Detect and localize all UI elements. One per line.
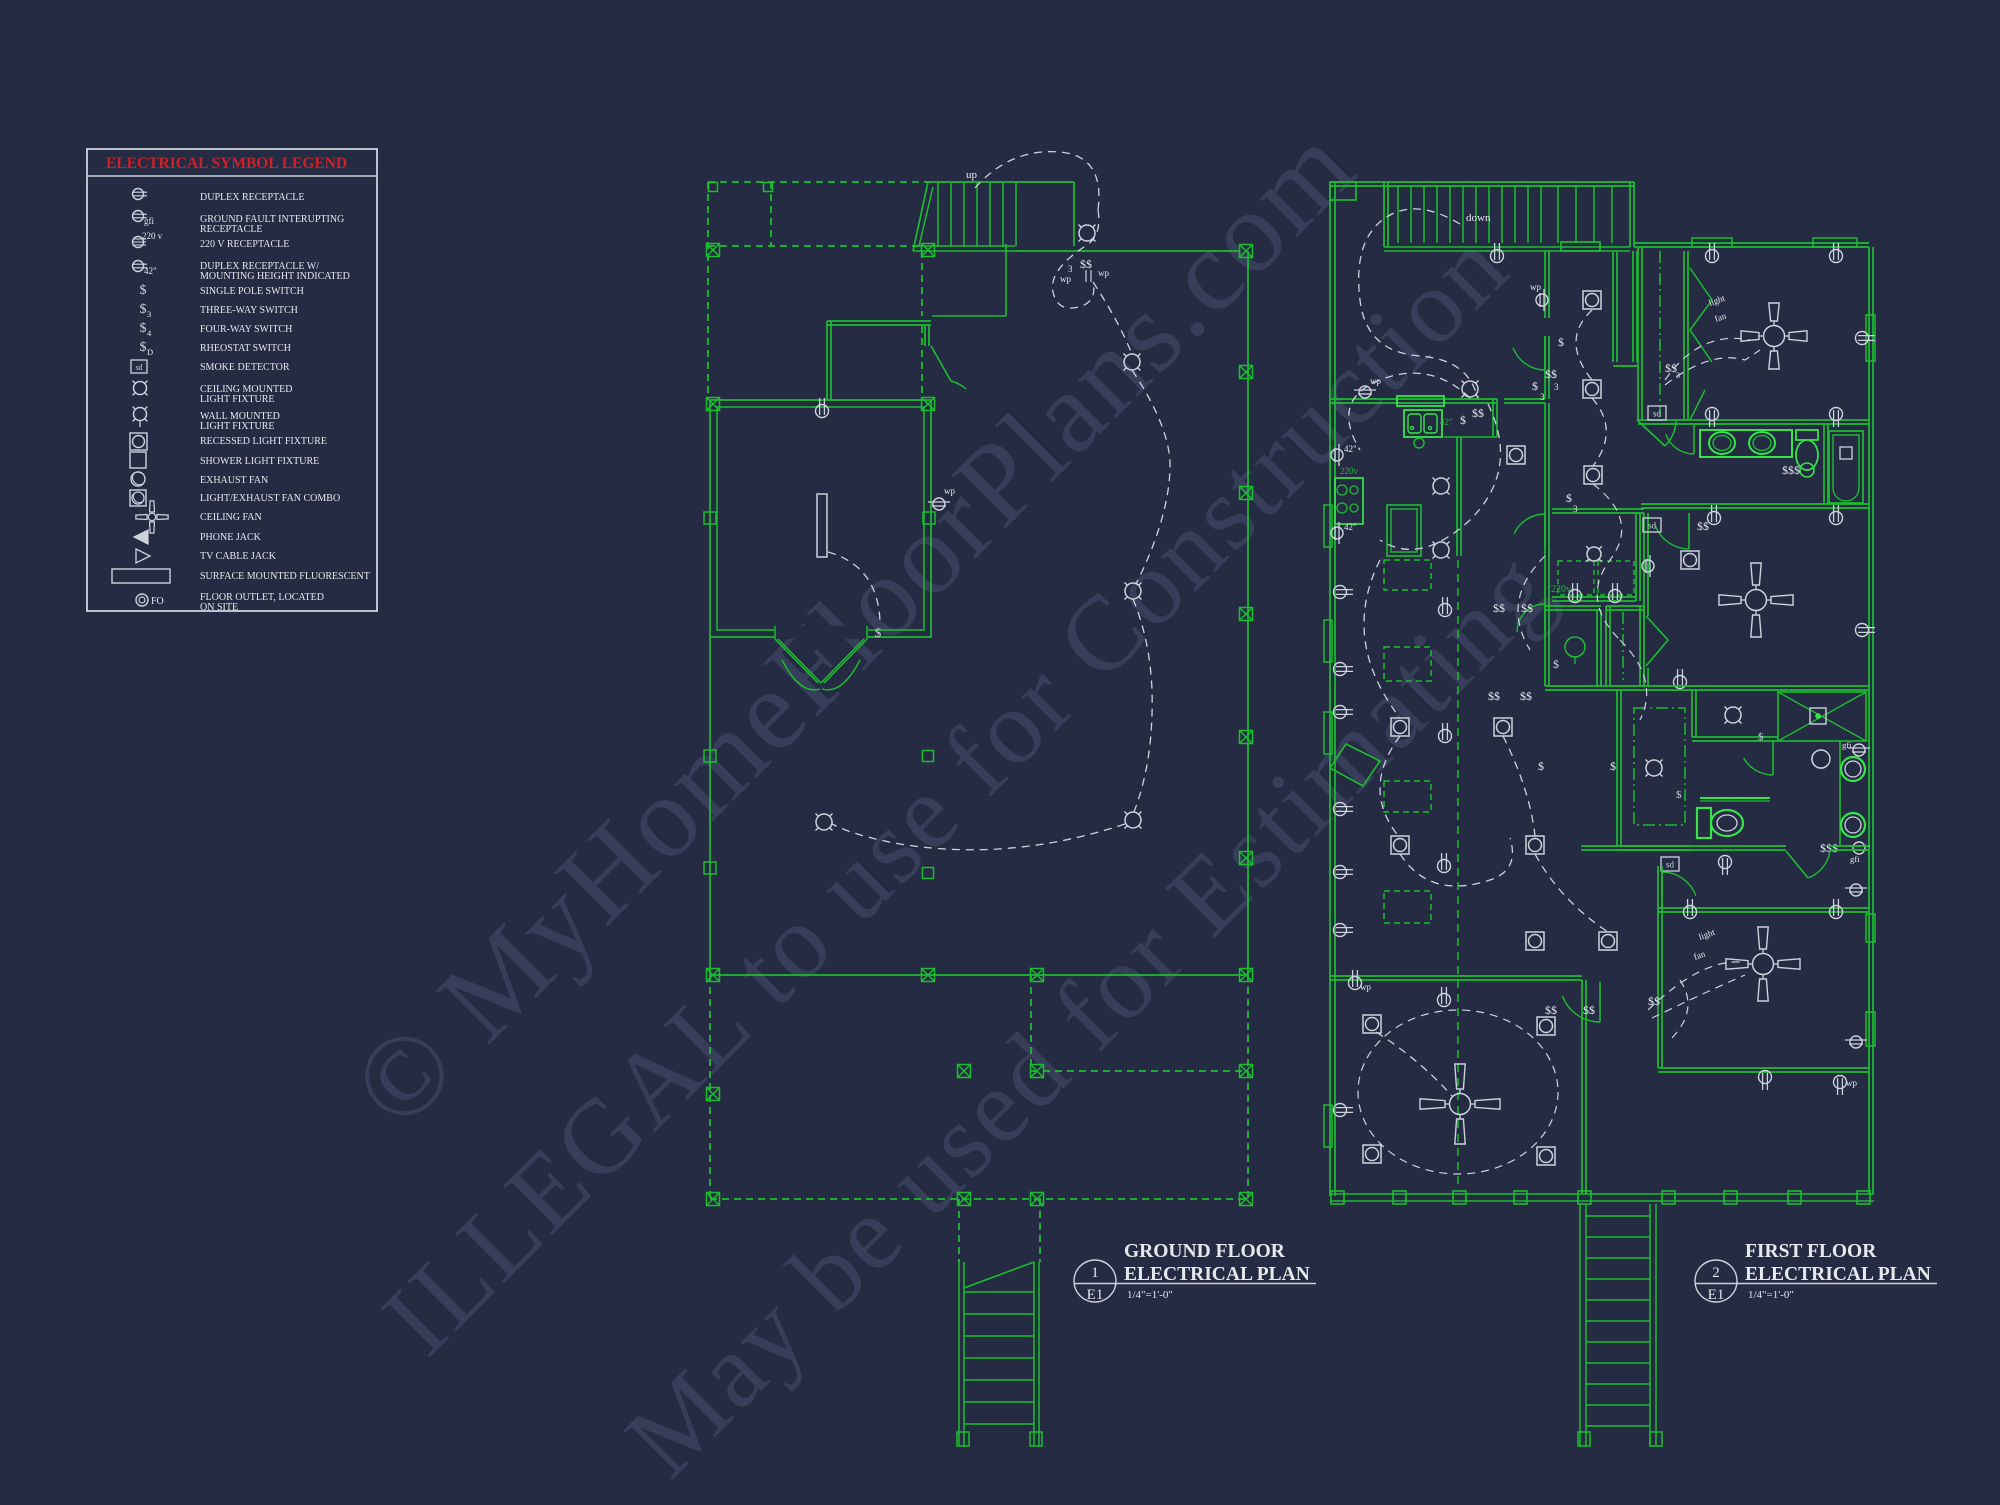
svg-text:1: 1 bbox=[1091, 1265, 1099, 1281]
svg-text:FO: FO bbox=[151, 596, 164, 607]
svg-text:wp: wp bbox=[1530, 282, 1541, 292]
svg-text:$: $ bbox=[1538, 759, 1544, 773]
svg-text:up: up bbox=[966, 169, 978, 181]
svg-text:$: $ bbox=[1558, 335, 1564, 349]
svg-text:ELECTRICAL PLAN: ELECTRICAL PLAN bbox=[1745, 1264, 1931, 1285]
svg-text:sd: sd bbox=[1666, 860, 1675, 870]
svg-text:RECEPTACLE: RECEPTACLE bbox=[200, 224, 263, 235]
svg-text:$$: $$ bbox=[1472, 406, 1484, 420]
svg-text:LIGHT FIXTURE: LIGHT FIXTURE bbox=[200, 394, 275, 405]
svg-text:SINGLE POLE SWITCH: SINGLE POLE SWITCH bbox=[200, 286, 304, 297]
svg-text:$$: $$ bbox=[1488, 689, 1500, 703]
svg-text:$$: $$ bbox=[1520, 689, 1532, 703]
svg-text:SMOKE DETECTOR: SMOKE DETECTOR bbox=[200, 362, 290, 373]
svg-text:EXHAUST FAN: EXHAUST FAN bbox=[200, 475, 268, 486]
svg-text:MOUNTING HEIGHT INDICATED: MOUNTING HEIGHT INDICATED bbox=[200, 271, 350, 282]
svg-text:$$: $$ bbox=[1648, 994, 1660, 1008]
svg-text:wp: wp bbox=[944, 486, 955, 496]
svg-text:$: $ bbox=[1676, 789, 1682, 801]
svg-text:$: $ bbox=[1532, 379, 1538, 393]
svg-text:42": 42" bbox=[144, 266, 157, 276]
svg-text:220 V RECEPTACLE: 220 V RECEPTACLE bbox=[200, 239, 289, 250]
svg-text:42": 42" bbox=[1440, 417, 1453, 427]
svg-text:$: $ bbox=[1460, 413, 1466, 427]
svg-text:220 v: 220 v bbox=[142, 231, 163, 241]
svg-text:$$: $$ bbox=[1545, 1003, 1557, 1017]
svg-text:$$: $$ bbox=[1583, 1003, 1595, 1017]
svg-text:$: $ bbox=[1758, 731, 1764, 743]
svg-text:$$$: $$$ bbox=[1782, 463, 1800, 477]
svg-text:$: $ bbox=[1610, 759, 1616, 773]
svg-text:SURFACE MOUNTED FLUORESCENT: SURFACE MOUNTED FLUORESCENT bbox=[200, 571, 370, 582]
svg-text:$: $ bbox=[140, 283, 147, 298]
svg-text:1/4"=1'-0": 1/4"=1'-0" bbox=[1748, 1289, 1794, 1301]
svg-text:$: $ bbox=[140, 302, 147, 317]
svg-text:2: 2 bbox=[1712, 1265, 1720, 1281]
svg-text:wp: wp bbox=[1098, 268, 1109, 278]
svg-text:1/4"=1'-0": 1/4"=1'-0" bbox=[1127, 1289, 1173, 1301]
svg-text:42": 42" bbox=[1344, 444, 1357, 454]
svg-text:CEILING FAN: CEILING FAN bbox=[200, 512, 262, 523]
svg-text:THREE-WAY SWITCH: THREE-WAY SWITCH bbox=[200, 305, 298, 316]
svg-text:3: 3 bbox=[1573, 504, 1578, 514]
svg-text:$: $ bbox=[1553, 657, 1559, 671]
svg-text:TV CABLE JACK: TV CABLE JACK bbox=[200, 551, 277, 562]
svg-text:42": 42" bbox=[1344, 522, 1357, 532]
svg-text:RECESSED LIGHT FIXTURE: RECESSED LIGHT FIXTURE bbox=[200, 436, 327, 447]
svg-text:E1: E1 bbox=[1708, 1287, 1725, 1303]
svg-text:FIRST FLOOR: FIRST FLOOR bbox=[1745, 1241, 1877, 1262]
svg-text:LIGHT FIXTURE: LIGHT FIXTURE bbox=[200, 421, 275, 432]
svg-text:gfi: gfi bbox=[1842, 740, 1852, 750]
svg-text:down: down bbox=[1466, 212, 1491, 224]
svg-text:wp: wp bbox=[1360, 982, 1371, 992]
svg-text:sd: sd bbox=[1648, 521, 1657, 531]
svg-text:$: $ bbox=[140, 321, 147, 336]
svg-text:$$: $$ bbox=[1697, 519, 1709, 533]
svg-text:$$: $$ bbox=[1080, 257, 1092, 271]
svg-text:D: D bbox=[147, 347, 153, 357]
svg-text:SHOWER LIGHT FIXTURE: SHOWER LIGHT FIXTURE bbox=[200, 456, 319, 467]
svg-text:220v: 220v bbox=[1340, 466, 1359, 476]
svg-text:DUPLEX RECEPTACLE: DUPLEX RECEPTACLE bbox=[200, 192, 304, 203]
svg-text:3: 3 bbox=[147, 309, 151, 319]
svg-text:$$: $$ bbox=[1493, 601, 1505, 615]
svg-text:gfi: gfi bbox=[1850, 854, 1860, 864]
svg-text:FOUR-WAY SWITCH: FOUR-WAY SWITCH bbox=[200, 324, 292, 335]
svg-text:gfi: gfi bbox=[144, 216, 154, 226]
svg-text:ON SITE: ON SITE bbox=[200, 602, 238, 613]
svg-text:E1: E1 bbox=[1087, 1287, 1104, 1303]
svg-text:220v: 220v bbox=[1551, 584, 1571, 595]
svg-text:$$: $$ bbox=[1545, 367, 1557, 381]
svg-text:$: $ bbox=[140, 340, 147, 355]
svg-text:RHEOSTAT SWITCH: RHEOSTAT SWITCH bbox=[200, 343, 291, 354]
svg-text:ELECTRICAL PLAN: ELECTRICAL PLAN bbox=[1124, 1264, 1310, 1285]
svg-text:$: $ bbox=[875, 625, 882, 640]
svg-text:$$: $$ bbox=[1521, 601, 1533, 615]
svg-text:3: 3 bbox=[1554, 382, 1559, 392]
svg-text:wp: wp bbox=[1060, 274, 1071, 284]
svg-text:wp: wp bbox=[1370, 376, 1381, 386]
svg-text:3: 3 bbox=[1068, 264, 1073, 274]
svg-text:GROUND FLOOR: GROUND FLOOR bbox=[1124, 1241, 1286, 1262]
svg-text:$: $ bbox=[1566, 491, 1572, 505]
svg-text:LIGHT/EXHAUST FAN COMBO: LIGHT/EXHAUST FAN COMBO bbox=[200, 493, 340, 504]
svg-text:sd: sd bbox=[1653, 409, 1662, 419]
svg-text:ELECTRICAL SYMBOL LEGEND: ELECTRICAL SYMBOL LEGEND bbox=[106, 155, 347, 172]
svg-text:wp: wp bbox=[1846, 1078, 1857, 1088]
svg-text:3: 3 bbox=[1540, 392, 1545, 402]
svg-text:sd: sd bbox=[135, 363, 142, 372]
svg-text:PHONE JACK: PHONE JACK bbox=[200, 532, 262, 543]
